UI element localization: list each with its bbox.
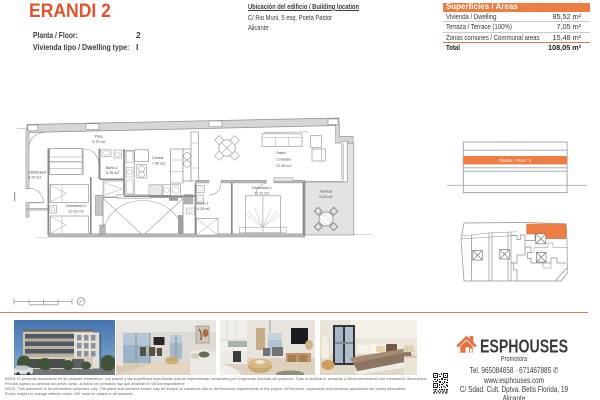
svg-text:3.78 m2: 3.78 m2	[106, 171, 119, 175]
svg-text:22.35 m2: 22.35 m2	[276, 164, 291, 168]
svg-text:4.29 m2: 4.29 m2	[197, 207, 210, 211]
svg-text:Planta / Floor: 2: Planta / Floor: 2	[499, 158, 532, 163]
svg-text:Terraza: Terraza	[320, 190, 333, 194]
svg-text:Dormitorio 2: Dormitorio 2	[66, 204, 86, 208]
svg-text:6.22 m2: 6.22 m2	[28, 175, 41, 179]
svg-text:Comedor: Comedor	[276, 157, 292, 161]
svg-text:Baño 2: Baño 2	[106, 166, 118, 170]
svg-text:Distribuidor: Distribuidor	[28, 170, 47, 174]
svg-text:5.37 m2: 5.37 m2	[92, 140, 105, 144]
svg-text:11.12 m2: 11.12 m2	[255, 192, 270, 196]
svg-text:7.65 m2: 7.65 m2	[152, 161, 165, 165]
svg-text:Baño 1: Baño 1	[197, 202, 209, 206]
svg-text:Paso: Paso	[95, 135, 103, 139]
svg-text:ESPHOUSES: ESPHOUSES	[480, 336, 568, 357]
svg-text:Dormitorio 1: Dormitorio 1	[252, 186, 272, 190]
svg-text:Cocina: Cocina	[152, 156, 164, 160]
svg-text:10.22 m2: 10.22 m2	[68, 210, 83, 214]
svg-text:Salón: Salón	[276, 151, 285, 155]
svg-text:6.53 m2: 6.53 m2	[319, 195, 332, 199]
